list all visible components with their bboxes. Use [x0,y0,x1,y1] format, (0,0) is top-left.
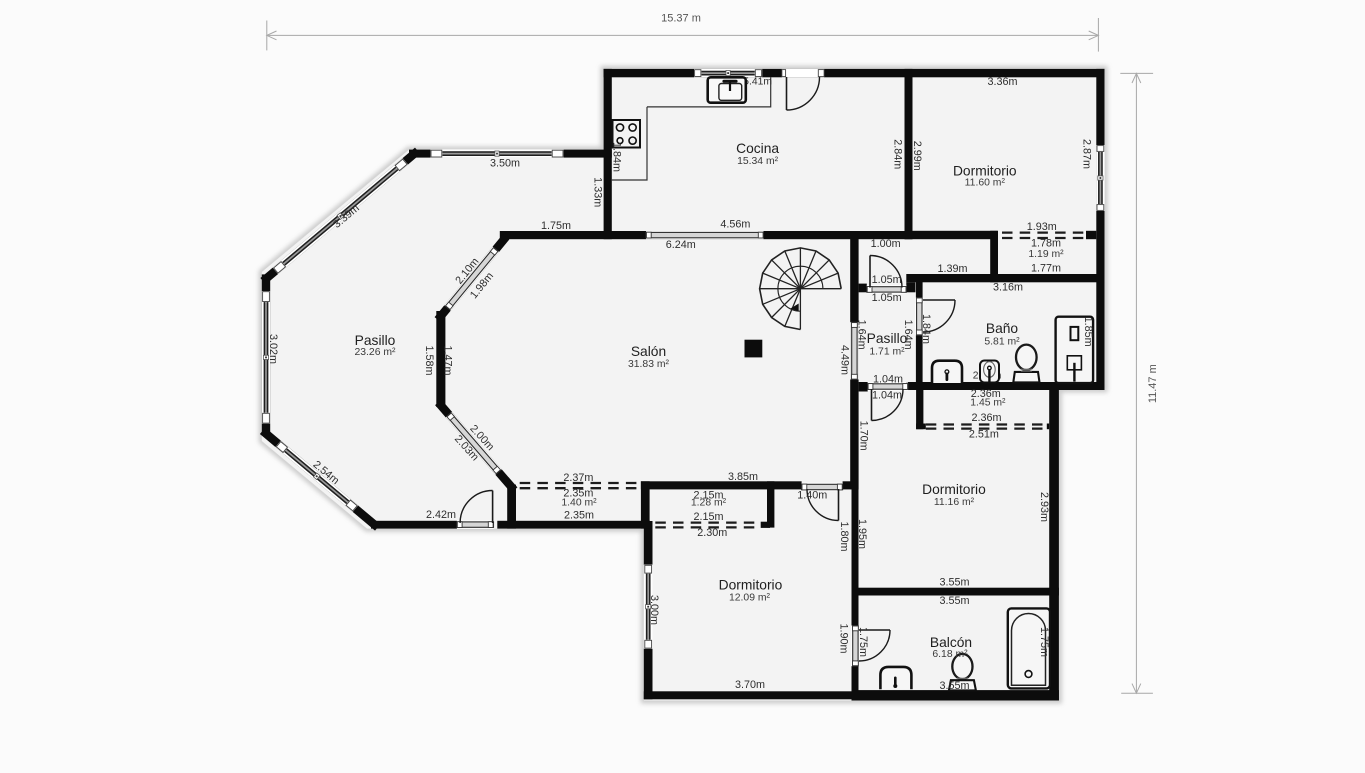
svg-text:Salón: Salón [631,344,666,359]
svg-text:4.56m: 4.56m [720,219,750,231]
svg-text:1.70m: 1.70m [858,421,870,451]
svg-text:Dormitorio: Dormitorio [719,578,783,593]
svg-text:1.19 m²: 1.19 m² [1028,249,1064,260]
svg-text:Pasillo: Pasillo [867,331,908,346]
svg-text:2.36m: 2.36m [971,412,1001,424]
svg-text:31.83 m²: 31.83 m² [628,359,670,370]
svg-text:1.40 m²: 1.40 m² [561,498,597,509]
svg-text:3.85m: 3.85m [728,471,758,483]
svg-text:11.16 m²: 11.16 m² [934,497,975,508]
svg-text:1.75m: 1.75m [857,627,869,657]
svg-text:1.78m: 1.78m [1031,237,1061,249]
svg-text:3.00m: 3.00m [648,595,660,625]
svg-text:2.99m: 2.99m [911,141,923,171]
svg-text:1.05m: 1.05m [872,292,902,304]
svg-text:1.71 m²: 1.71 m² [869,347,905,358]
svg-text:3.55m: 3.55m [939,595,969,607]
svg-text:1.47m: 1.47m [441,345,453,375]
svg-text:1.77m: 1.77m [1031,263,1061,275]
svg-text:Baño: Baño [986,321,1019,336]
svg-text:Cocina: Cocina [736,141,779,156]
svg-text:1.00m: 1.00m [871,238,901,250]
svg-text:Pasillo: Pasillo [355,333,396,348]
svg-text:1.75m: 1.75m [1038,627,1050,657]
svg-text:2.37m: 2.37m [563,472,593,484]
svg-text:6.18 m²: 6.18 m² [932,649,968,660]
svg-text:3.50m: 3.50m [490,158,520,170]
svg-text:3.36m: 3.36m [987,76,1017,88]
svg-text:5.81 m²: 5.81 m² [984,337,1020,348]
svg-text:1.45 m²: 1.45 m² [970,398,1006,409]
svg-text:11.47 m: 11.47 m [1147,364,1159,403]
svg-text:2.84m: 2.84m [891,139,903,169]
svg-text:1.05m: 1.05m [872,274,902,286]
svg-text:3.55m: 3.55m [939,577,969,589]
svg-text:11.60 m²: 11.60 m² [965,178,1006,189]
svg-text:Dormitorio: Dormitorio [922,482,986,497]
svg-text:5.41m: 5.41m [743,77,772,88]
svg-text:3.70m: 3.70m [735,679,765,691]
svg-text:1.28 m²: 1.28 m² [691,498,727,509]
svg-text:2.87m: 2.87m [1081,139,1093,169]
svg-text:2.51m: 2.51m [969,429,999,441]
svg-text:1.40m: 1.40m [797,489,827,501]
svg-text:3.02m: 3.02m [267,334,279,364]
svg-text:1.95m: 1.95m [856,519,868,549]
svg-text:2.93m: 2.93m [1038,492,1050,522]
svg-text:3.16m: 3.16m [993,282,1023,294]
svg-text:12.09 m²: 12.09 m² [729,593,771,604]
svg-text:1.90m: 1.90m [837,623,849,653]
svg-text:2.35m: 2.35m [564,510,594,522]
svg-text:6.24m: 6.24m [666,239,696,251]
svg-text:Balcón: Balcón [930,635,972,650]
svg-text:23.26 m²: 23.26 m² [354,347,396,358]
svg-text:1.84m: 1.84m [611,142,623,172]
svg-text:1.75m: 1.75m [541,220,571,232]
svg-text:1.04m: 1.04m [872,389,902,401]
svg-text:2.30m: 2.30m [697,527,727,539]
svg-text:15.34 m²: 15.34 m² [737,156,779,167]
svg-text:1.04m: 1.04m [873,374,903,386]
svg-text:1.84m: 1.84m [920,314,932,344]
svg-text:1.85m: 1.85m [1082,317,1094,347]
svg-text:15.37 m: 15.37 m [661,13,701,25]
svg-text:Dormitorio: Dormitorio [953,164,1017,179]
svg-text:3.55m: 3.55m [939,680,969,692]
svg-text:4.49m: 4.49m [839,345,851,375]
svg-text:2.42m: 2.42m [426,509,456,521]
svg-text:2.15m: 2.15m [693,511,723,523]
svg-text:1.80m: 1.80m [838,521,850,551]
svg-text:1.93m: 1.93m [1027,221,1057,233]
svg-text:1.58m: 1.58m [423,345,435,375]
svg-text:1.39m: 1.39m [937,263,967,275]
svg-text:1.33m: 1.33m [592,177,604,207]
